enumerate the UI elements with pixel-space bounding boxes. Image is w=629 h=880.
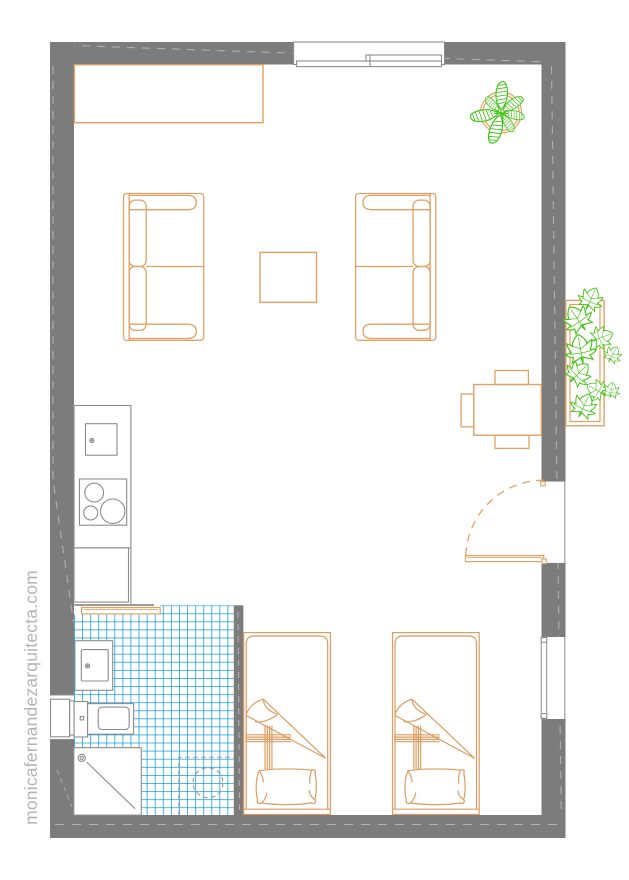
svg-text:monicafernandezarquitecta.com: monicafernandezarquitecta.com (21, 570, 41, 825)
